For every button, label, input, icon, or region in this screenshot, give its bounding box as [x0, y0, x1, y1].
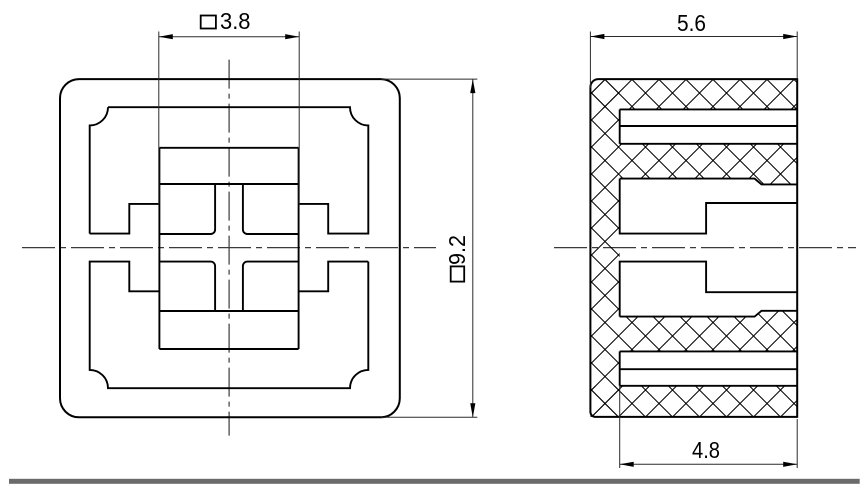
svg-text:5.6: 5.6 [677, 10, 706, 36]
svg-text:9.2: 9.2 [444, 235, 470, 265]
svg-text:4.8: 4.8 [692, 437, 720, 463]
svg-text:3.8: 3.8 [220, 8, 251, 34]
